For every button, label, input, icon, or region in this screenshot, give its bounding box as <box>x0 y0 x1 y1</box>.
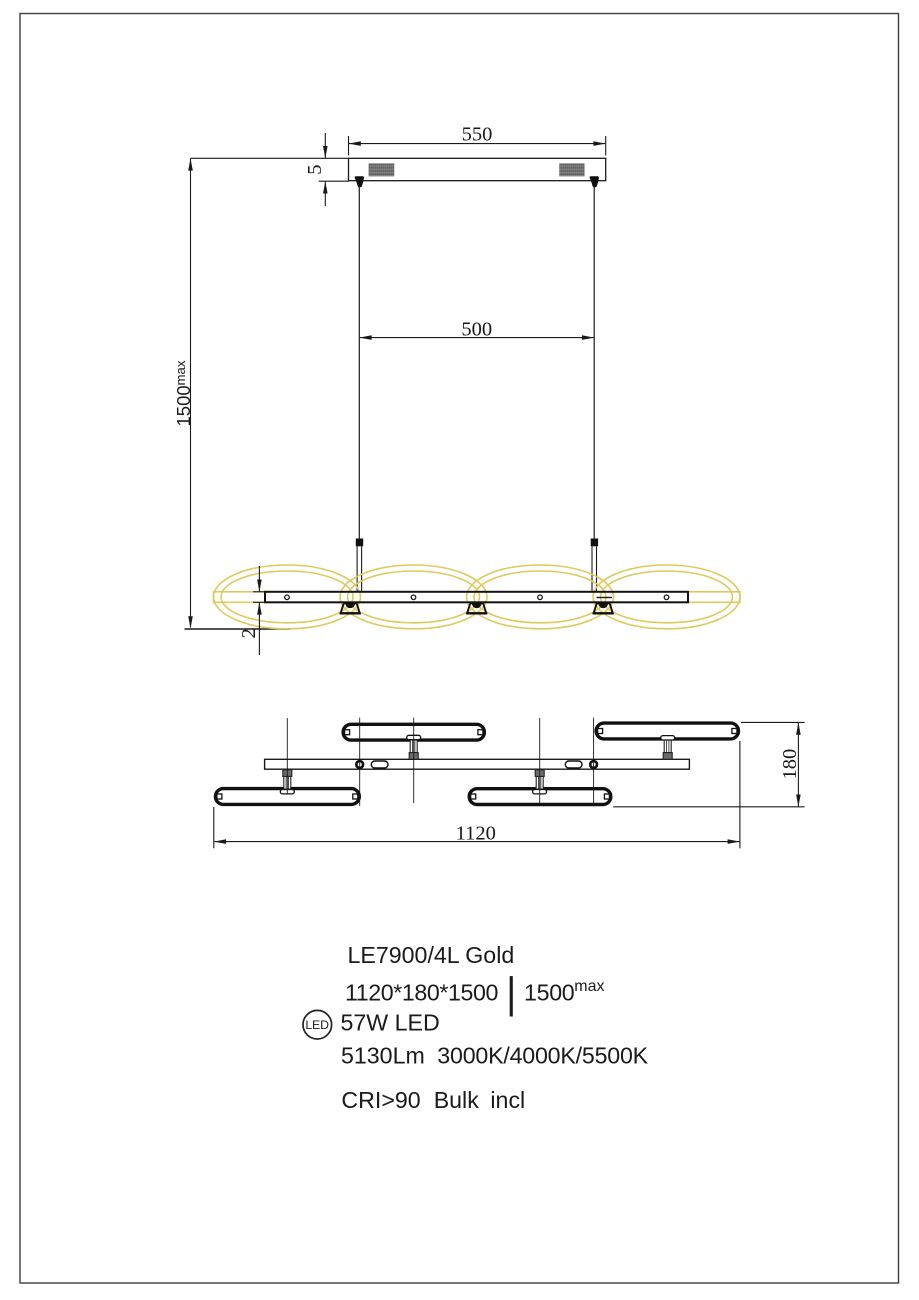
svg-text:incl: incl <box>490 1087 525 1113</box>
svg-text:Bulk: Bulk <box>434 1087 480 1113</box>
svg-text:1120: 1120 <box>456 822 496 844</box>
svg-text:1120*180*1500: 1120*180*1500 <box>345 980 498 1006</box>
svg-text:2: 2 <box>238 628 260 638</box>
svg-text:3000K/4000K/5500K: 3000K/4000K/5500K <box>437 1042 648 1068</box>
svg-text:5130Lm: 5130Lm <box>341 1042 425 1068</box>
svg-text:LE7900/4L Gold: LE7900/4L Gold <box>348 942 515 968</box>
svg-text:5: 5 <box>304 165 326 175</box>
svg-text:max: max <box>574 978 604 995</box>
svg-text:180: 180 <box>779 749 801 780</box>
svg-text:500: 500 <box>461 319 492 341</box>
svg-text:1500: 1500 <box>524 980 574 1006</box>
svg-text:max: max <box>173 360 188 385</box>
svg-text:LED: LED <box>305 1018 329 1032</box>
svg-text:57W LED: 57W LED <box>341 1010 440 1036</box>
svg-text:CRI>90: CRI>90 <box>341 1087 420 1113</box>
svg-text:550: 550 <box>462 124 493 146</box>
svg-text:1500: 1500 <box>173 385 194 426</box>
